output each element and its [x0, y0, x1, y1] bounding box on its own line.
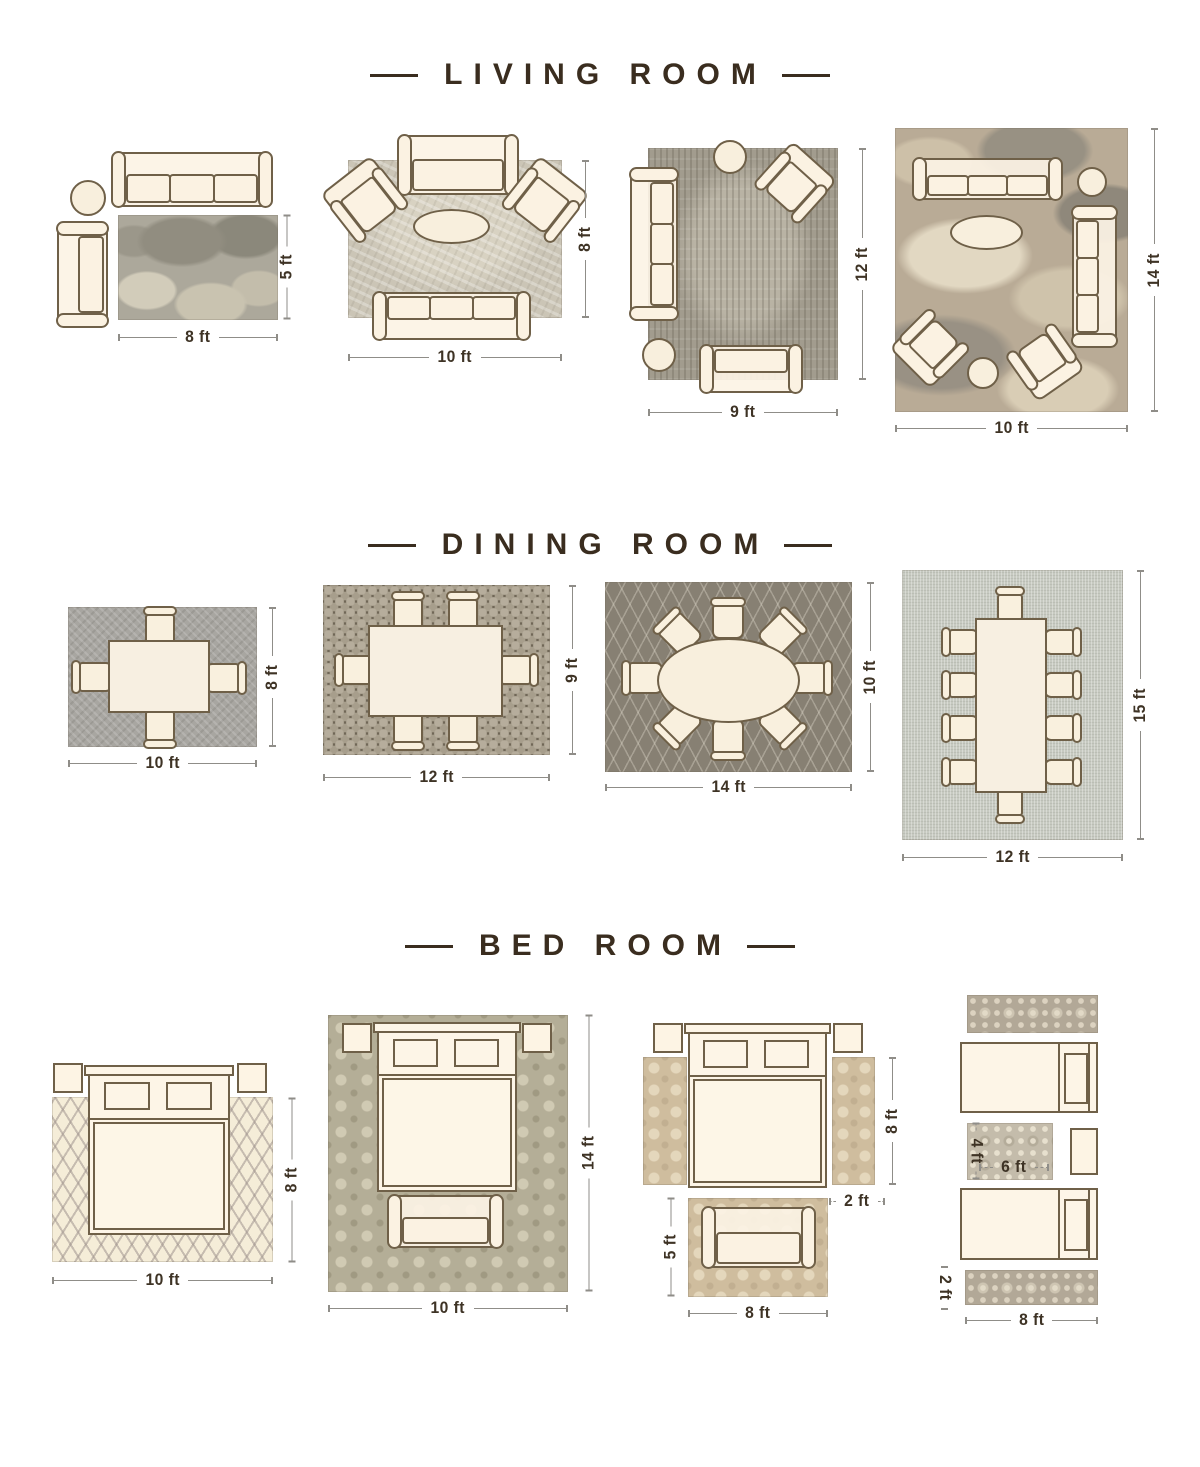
side-table [642, 338, 676, 372]
dimension-label: 5 ft [661, 1228, 681, 1266]
dimension-line [188, 1280, 273, 1281]
diagram-dining-10x8: 8 ft 10 ft [62, 600, 312, 785]
dimension-label: 8 ft [739, 1303, 777, 1323]
dimension-label: 14 ft [1144, 246, 1164, 293]
sofa-cushion [927, 175, 969, 196]
width-dimension: 14 ft [605, 776, 852, 798]
width-dimension: 8 ft [118, 326, 278, 348]
sofa-cushions [716, 1232, 801, 1264]
sofa-arm-left [111, 151, 126, 208]
dimension-line [323, 777, 411, 778]
dimension-line [1035, 1167, 1049, 1168]
height-dimension: 9 ft [561, 585, 583, 755]
sofa-cushion [650, 223, 674, 266]
pillow [393, 1039, 438, 1067]
sofa-arm-right [629, 167, 679, 182]
dimension-line [481, 357, 562, 358]
sofa-cushion [78, 236, 104, 313]
runner-rug [832, 1057, 875, 1185]
dimension-line [219, 337, 278, 338]
dimension-label: 2 ft [935, 1269, 955, 1307]
diagram-dining-12x9: 9 ft 12 ft [322, 578, 597, 798]
section-title-living-room: LIVING ROOM [0, 58, 1200, 92]
dimension-line [348, 357, 429, 358]
diagram-bed-10x8: 8 ft 10 ft [40, 1055, 325, 1300]
chair-seat [1044, 672, 1074, 698]
dining-chair [941, 670, 979, 700]
dimension-line [965, 1320, 1011, 1321]
height-dimension: 15 ft [1129, 570, 1151, 840]
dimension-line [328, 1308, 422, 1309]
sofa-arm-right [56, 221, 109, 236]
sofa-cushions [1076, 220, 1099, 333]
dimension-line [976, 1172, 977, 1180]
area-rug [118, 215, 278, 320]
dimension-line [870, 703, 871, 772]
sofa-cushions [714, 349, 788, 373]
bed-linen-line [690, 1075, 825, 1077]
dimension-label: 10 ft [139, 753, 186, 773]
dining-chair [941, 713, 979, 743]
diagram-bed-twin: 4 ft 6 ft 2 ft 8 ft [945, 990, 1195, 1340]
sofa-arm-left [629, 306, 679, 321]
pillow [1064, 1199, 1088, 1251]
sofa-cushions [78, 236, 104, 313]
sofa-cushion [1076, 220, 1099, 259]
width-dimension: 10 ft [328, 1297, 568, 1319]
dimension-label: 12 ft [413, 767, 460, 787]
dimension-line [902, 857, 987, 858]
sofa-arm-right [1048, 157, 1063, 201]
dimension-label: 8 ft [282, 1161, 302, 1199]
dimension-line [605, 787, 703, 788]
dimension-line [670, 1198, 671, 1227]
bed-linen-line [90, 1118, 228, 1120]
dimension-label: 10 ft [860, 653, 880, 700]
dimension-line [52, 1280, 137, 1281]
dining-chair [205, 661, 247, 695]
dimension-line [870, 582, 871, 651]
diagram-dining-12x15: 15 ft 12 ft [900, 565, 1190, 870]
dimension-label: 10 ft [431, 347, 478, 367]
height-dimension: 10 ft [859, 582, 881, 772]
sofa-arm-left [1071, 205, 1118, 220]
dimension-label: 12 ft [989, 847, 1036, 867]
dimension-line [1052, 1320, 1098, 1321]
dimension-line [585, 160, 586, 218]
section-title: BED ROOM [479, 929, 732, 963]
nightstand [53, 1063, 83, 1093]
loveseat [398, 135, 518, 195]
sofa-cushion [472, 296, 516, 320]
nightstand [1070, 1128, 1098, 1175]
dining-chair [1044, 713, 1082, 743]
twin-bed [960, 1042, 1098, 1113]
dimension-line [878, 1201, 885, 1202]
sofa-cushion [716, 1232, 801, 1264]
dimension-line [945, 1309, 946, 1310]
dimension-label: 9 ft [724, 402, 762, 422]
bed-linen-line [379, 1074, 515, 1076]
width-dimension: 10 ft [348, 346, 562, 368]
foot-rug-width-dimension: 8 ft [688, 1302, 828, 1324]
dimension-line [892, 1057, 893, 1100]
dimension-line [976, 1123, 977, 1131]
dimension-label: 15 ft [1130, 681, 1150, 728]
sofa-arm-right [699, 344, 714, 394]
dimension-line [648, 412, 722, 413]
dimension-line [588, 1015, 589, 1128]
dining-chair [941, 627, 979, 657]
dimension-line [1154, 128, 1155, 244]
sofa-arm-left [397, 134, 412, 196]
nightstand [237, 1063, 267, 1093]
runner-rug [965, 1270, 1098, 1305]
dimension-line [979, 1167, 993, 1168]
accent-rug-width-dimension: 6 ft [979, 1156, 1049, 1178]
dimension-line [895, 428, 986, 429]
dimension-label: 9 ft [562, 651, 582, 689]
bed [88, 1065, 230, 1235]
dining-chair [1044, 670, 1082, 700]
sofa-cushions [387, 296, 516, 320]
sofa-cushion [650, 182, 674, 225]
sofa [913, 158, 1062, 200]
sofa-cushion [402, 1217, 489, 1244]
dimension-line [1140, 731, 1141, 840]
height-dimension: 5 ft [276, 215, 298, 320]
pillow [454, 1039, 499, 1067]
foot-rug-height-dimension: 5 ft [660, 1198, 682, 1297]
blanket [382, 1078, 512, 1187]
dimension-label: 10 ft [988, 418, 1035, 438]
sofa [630, 168, 678, 320]
dimension-line [670, 1268, 671, 1297]
dimension-label: 12 ft [852, 240, 872, 287]
bed-linen-line [1058, 1044, 1060, 1111]
width-dimension: 12 ft [323, 766, 550, 788]
dimension-label: 14 ft [579, 1129, 599, 1176]
section-title: LIVING ROOM [444, 58, 767, 92]
width-dimension: 10 ft [68, 752, 257, 774]
headboard [84, 1065, 234, 1076]
dining-chair [71, 660, 113, 694]
dining-chair [710, 597, 746, 639]
height-dimension: 12 ft [851, 148, 873, 380]
width-dimension: 10 ft [895, 417, 1128, 439]
dimension-line [588, 1179, 589, 1292]
chair-seat [712, 719, 744, 753]
pillow [1064, 1053, 1088, 1104]
diagram-living-8x5: 5 ft 8 ft [55, 148, 320, 358]
sofa-arm-left [387, 1194, 402, 1249]
side-table [967, 357, 999, 389]
sofa [373, 292, 530, 340]
sofa-cushion [1076, 294, 1099, 333]
dimension-line [1038, 857, 1123, 858]
diagram-living-10x14: 14 ft 10 ft [893, 118, 1193, 453]
dining-table [108, 640, 210, 713]
sofa-cushions [927, 175, 1048, 196]
bed [688, 1023, 827, 1188]
chair-seat [205, 663, 239, 693]
dimension-label: 2 ft [838, 1191, 876, 1211]
sofa-cushion [169, 174, 214, 203]
dining-table [975, 618, 1047, 793]
headboard [373, 1022, 521, 1033]
runner-rug [967, 995, 1098, 1033]
dimension-line [585, 260, 586, 318]
dimension-line [291, 1201, 292, 1263]
sofa-arm-right [1071, 333, 1118, 348]
dimension-line [892, 1142, 893, 1185]
twin-bed [960, 1188, 1098, 1260]
dimension-label: 8 ft [882, 1102, 902, 1140]
dining-table [368, 625, 503, 717]
dimension-label: 8 ft [179, 327, 217, 347]
dimension-line [862, 290, 863, 380]
dimension-label: 10 ft [424, 1298, 471, 1318]
side-table [70, 180, 106, 216]
height-dimension: 8 ft [281, 1098, 303, 1263]
title-dash-left [370, 74, 418, 77]
pillow [104, 1082, 150, 1110]
chair-seat [712, 605, 744, 639]
title-dash-left [368, 544, 416, 547]
bed [377, 1022, 517, 1192]
dimension-label: 8 ft [262, 658, 282, 696]
height-dimension: 8 ft [261, 607, 283, 747]
headboard [1088, 1042, 1098, 1113]
sofa-cushion [714, 349, 788, 373]
dimension-line [1140, 570, 1141, 679]
dimension-line [118, 337, 177, 338]
diagram-living-10x8: 8 ft 10 ft [340, 130, 620, 375]
headboard [1088, 1188, 1098, 1260]
pillow [166, 1082, 212, 1110]
dimension-line [764, 412, 838, 413]
chair-seat [1044, 715, 1074, 741]
dimension-line [272, 607, 273, 656]
sofa-arm-right [258, 151, 273, 208]
nightstand [522, 1023, 552, 1053]
nightstand [342, 1023, 372, 1053]
dimension-label: 8 ft [1012, 1310, 1050, 1330]
coffee-table [950, 215, 1023, 250]
sofa-arm-left [912, 157, 927, 201]
runner-length-dimension: 8 ft [881, 1057, 903, 1185]
width-dimension: 12 ft [902, 846, 1123, 868]
dining-table-oval [657, 638, 800, 723]
sofa-cushion [967, 175, 1009, 196]
section-title-bed-room: BED ROOM [0, 929, 1200, 963]
runner-height-dimension: 2 ft [934, 1266, 956, 1310]
dimension-line [272, 698, 273, 747]
pillow [703, 1040, 748, 1068]
title-dash-right [747, 945, 795, 948]
sofa [1072, 206, 1117, 347]
height-dimension: 8 ft [574, 160, 596, 318]
runner-width-dimension: 2 ft [829, 1190, 885, 1212]
sofa-cushion [650, 263, 674, 306]
sofa-cushion [429, 296, 473, 320]
blanket [93, 1122, 225, 1230]
dimension-label: 14 ft [705, 777, 752, 797]
side-table [1077, 167, 1107, 197]
dimension-line [1037, 428, 1128, 429]
dimension-line [779, 1313, 828, 1314]
diagram-bed-runners: 8 ft 2 ft 5 ft 8 ft [645, 1020, 915, 1325]
dimension-line [754, 787, 852, 788]
dimension-line [829, 1201, 836, 1202]
title-dash-right [784, 544, 832, 547]
dimension-line [188, 763, 257, 764]
section-title-dining-room: DINING ROOM [0, 528, 1200, 562]
dimension-line [1154, 296, 1155, 412]
dining-chair [497, 653, 539, 687]
dimension-line [572, 585, 573, 649]
loveseat [57, 222, 108, 327]
sofa-cushions [126, 174, 258, 203]
title-dash-right [782, 74, 830, 77]
sofa-cushion [387, 296, 431, 320]
sofa-arm-right [801, 1206, 816, 1269]
pillow [764, 1040, 809, 1068]
width-dimension: 9 ft [648, 401, 838, 423]
bench [388, 1195, 503, 1248]
dining-chair [710, 719, 746, 761]
sofa-cushion [1076, 257, 1099, 296]
dimension-line [291, 1098, 292, 1160]
nightstand [833, 1023, 863, 1053]
dimension-label: 5 ft [277, 248, 297, 286]
side-table [713, 140, 747, 174]
diagram-living-9x12: 12 ft 9 ft [628, 138, 888, 433]
sofa-cushions [650, 182, 674, 306]
dimension-line [474, 1308, 568, 1309]
dimension-label: 8 ft [575, 220, 595, 258]
height-dimension: 14 ft [1143, 128, 1165, 412]
sofa-cushion [1006, 175, 1048, 196]
chair-seat [1044, 759, 1074, 785]
dining-chair [143, 707, 177, 749]
diagram-bed-10x14: 14 ft 10 ft [328, 1008, 618, 1318]
dimension-line [462, 777, 550, 778]
dimension-label: 6 ft [995, 1157, 1033, 1177]
dimension-line [68, 763, 137, 764]
runner-rug [643, 1057, 687, 1185]
sofa-cushion [213, 174, 258, 203]
sofa-arm-left [516, 291, 531, 341]
sofa-arm-right [489, 1194, 504, 1249]
rug-size-guide: LIVING ROOM 5 ft 8 ft [0, 0, 1200, 1467]
sofa-cushion [412, 159, 504, 191]
diagram-dining-14x10: 10 ft 14 ft [602, 580, 897, 800]
title-dash-left [405, 945, 453, 948]
dimension-line [945, 1266, 946, 1267]
sofa-arm-right [372, 291, 387, 341]
runner-width-dimension: 8 ft [965, 1309, 1098, 1331]
dimension-line [862, 148, 863, 238]
section-title: DINING ROOM [442, 528, 770, 562]
sofa-cushions [402, 1217, 489, 1244]
dimension-line [286, 288, 287, 320]
dining-chair [1044, 627, 1082, 657]
headboard [684, 1023, 831, 1034]
blanket [693, 1079, 822, 1183]
sofa-cushions [412, 159, 504, 191]
bench [702, 1207, 815, 1268]
width-dimension: 10 ft [52, 1269, 273, 1291]
dining-chair [941, 757, 979, 787]
loveseat [700, 345, 802, 393]
dining-chair [1044, 757, 1082, 787]
nightstand [653, 1023, 683, 1053]
sofa [112, 152, 272, 207]
dimension-line [572, 691, 573, 755]
dimension-line [286, 215, 287, 247]
sofa-cushion [126, 174, 171, 203]
bed-linen-line [1058, 1190, 1060, 1258]
height-dimension: 14 ft [578, 1015, 600, 1292]
sofa-arm-left [701, 1206, 716, 1269]
dimension-label: 10 ft [139, 1270, 186, 1290]
sofa-arm-left [788, 344, 803, 394]
chair-seat [1044, 629, 1074, 655]
dimension-line [688, 1313, 737, 1314]
coffee-table [413, 209, 490, 244]
sofa-arm-left [56, 313, 109, 328]
